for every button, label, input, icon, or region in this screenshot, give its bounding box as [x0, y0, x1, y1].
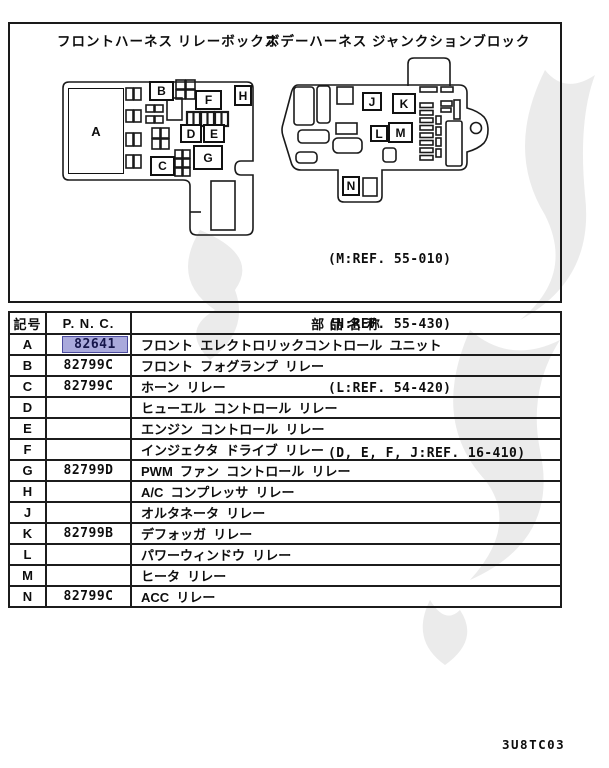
parts-table: 記号 P. N. C. 部 品 名 称 A 82641 フロント エレクトロリッ…: [8, 311, 562, 608]
table-header-row: 記号 P. N. C. 部 品 名 称: [9, 312, 561, 334]
component-box-f: F: [195, 90, 222, 110]
table-row: L パワーウィンドウ リレー: [9, 544, 561, 565]
component-box-h: H: [234, 85, 252, 106]
component-box-j: J: [362, 92, 382, 111]
component-box-e: E: [203, 124, 225, 143]
table-row: B 82799C フロント フォグランプ リレー: [9, 355, 561, 376]
table-row: G 82799D PWM ファン コントロール リレー: [9, 460, 561, 481]
header-name: 部 品 名 称: [131, 312, 561, 334]
component-box-d: D: [180, 124, 202, 143]
component-box-n: N: [342, 176, 360, 196]
component-box-b: B: [149, 81, 174, 101]
catalog-page: フロントハーネス リレーボックス ボデーハーネス ジャンクションブロック A B…: [0, 0, 609, 768]
junction-block-title: ボデーハーネス ジャンクションブロック: [266, 30, 530, 50]
component-box-l: L: [370, 125, 388, 142]
component-box-g: G: [193, 145, 223, 170]
table-row: M ヒータ リレー: [9, 565, 561, 586]
fiche-code: 3U8TC03: [502, 737, 565, 752]
header-pnc: P. N. C.: [46, 312, 131, 334]
ref-line: (M:REF. 55-010): [328, 249, 558, 271]
component-box-a: A: [68, 88, 124, 174]
component-box-k: K: [392, 93, 416, 114]
table-row: E エンジン コントロール リレー: [9, 418, 561, 439]
component-box-c: C: [150, 156, 175, 176]
table-row: C 82799C ホーン リレー: [9, 376, 561, 397]
selected-pnc[interactable]: 82641: [62, 336, 128, 353]
table-row: N 82799C ACC リレー: [9, 586, 561, 607]
table-row: J オルタネータ リレー: [9, 502, 561, 523]
table-row: A 82641 フロント エレクトロリックコントロール ユニット: [9, 334, 561, 355]
table-row: H A/C コンプレッサ リレー: [9, 481, 561, 502]
table-row: F インジェクタ ドライブ リレー: [9, 439, 561, 460]
header-symbol: 記号: [9, 312, 46, 334]
table-row: D ヒューエル コントロール リレー: [9, 397, 561, 418]
table-row: K 82799B デフォッガ リレー: [9, 523, 561, 544]
relay-box-title: フロントハーネス リレーボックス: [57, 30, 279, 50]
component-box-m: M: [388, 122, 413, 143]
